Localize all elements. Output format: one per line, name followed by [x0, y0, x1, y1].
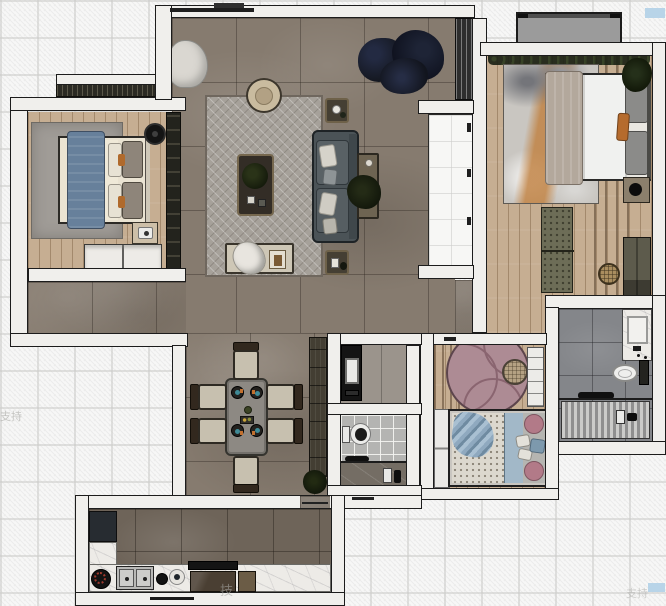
toilet-bowl: [612, 364, 638, 382]
faucet: [633, 346, 641, 351]
kids-pillow-pink: [524, 461, 544, 481]
closet-top-strip: [56, 84, 160, 97]
sliding-glass-door: [455, 18, 473, 100]
wall: [172, 345, 186, 497]
table-plant: [242, 163, 268, 189]
bedroom-left-floor: [28, 112, 166, 272]
dining-chair-seat: [266, 418, 295, 444]
dining-chair-seat: [233, 350, 259, 380]
wall: [327, 333, 341, 497]
drain: [125, 577, 129, 581]
balcony: [516, 12, 622, 45]
armchair: [246, 78, 282, 113]
napkin-teal: [255, 428, 260, 433]
shower-knob: [627, 413, 637, 421]
plate: [231, 424, 244, 437]
center-snacks: [240, 416, 254, 424]
floor-plan: 支持 技 支持: [0, 0, 666, 606]
wall: [75, 495, 89, 606]
pillow-gray: [625, 131, 648, 175]
nightstand: [623, 177, 650, 203]
dining-plant: [303, 470, 327, 494]
centerpiece-plant: [244, 406, 252, 414]
bench: [225, 243, 294, 274]
table-cup: [247, 196, 255, 204]
shower-hose: [394, 470, 401, 483]
fridge: [89, 511, 117, 542]
pillow-gray: [122, 182, 143, 219]
wall: [28, 268, 186, 282]
kids-pouf: [502, 359, 528, 385]
wardrobe-strip: [166, 112, 181, 272]
void-mark: [467, 217, 471, 225]
armchair-seat: [255, 87, 273, 105]
plate: [250, 386, 263, 399]
pillow-gray: [122, 141, 143, 178]
toilet-seat-line: [618, 369, 632, 378]
food-orange: [240, 389, 243, 393]
plant-foliage: [380, 58, 428, 94]
wall: [10, 97, 28, 347]
toilet-cistern: [639, 360, 649, 385]
wall: [420, 488, 559, 500]
wall: [418, 265, 474, 279]
void-mark: [467, 123, 471, 132]
sink-basin: [119, 569, 134, 587]
bench-box: [269, 250, 286, 269]
kitchen-cabinet-dark: [190, 571, 236, 592]
bed-headboard: [145, 138, 150, 222]
bench-olive: [541, 207, 573, 293]
toilet-tank: [342, 426, 350, 443]
box-figure: [274, 255, 282, 266]
range-hood-bar: [188, 561, 238, 570]
watermark-text: 支持: [0, 408, 22, 424]
kitchen-door-leaf: [302, 502, 328, 504]
sofa-pillow: [318, 144, 337, 168]
napkin-teal: [255, 391, 260, 396]
wall: [406, 345, 420, 488]
bed-blue-throw: [67, 131, 105, 229]
wall: [652, 295, 666, 455]
side-table-bottom: [325, 250, 349, 275]
pillow-orange: [118, 154, 125, 166]
plate-center: [174, 574, 180, 580]
wall: [327, 403, 422, 415]
wall: [420, 333, 547, 345]
console-plant: [347, 175, 381, 209]
decor-item: [331, 258, 339, 268]
bed-headboard: [647, 75, 651, 179]
dining-chair-back: [233, 484, 259, 493]
dining-chair-seat: [198, 418, 227, 444]
console-vase: [365, 159, 373, 167]
blue-artifact: [648, 583, 665, 592]
wall: [10, 333, 188, 347]
wall: [545, 441, 666, 455]
wall: [652, 42, 666, 308]
wall: [545, 295, 666, 309]
closet-cap-wall: [56, 74, 160, 85]
table-lamp: [629, 183, 642, 196]
tray-dot: [144, 231, 149, 236]
kitchen-cabinet-brown: [238, 571, 256, 592]
lightwell-void: [428, 114, 473, 266]
round-burner: [91, 569, 111, 589]
kids-pillow-white: [515, 434, 531, 448]
toilet-lid: [355, 428, 367, 441]
kids-pillow-blue: [529, 438, 545, 454]
drain: [143, 577, 147, 581]
wall: [420, 333, 434, 500]
burner-ring: [94, 572, 106, 584]
bench-split: [542, 250, 574, 252]
wall: [75, 592, 345, 606]
wall: [545, 307, 559, 500]
kids-bed: [448, 409, 545, 487]
wall: [155, 5, 172, 100]
food-orange: [252, 431, 255, 435]
plate: [231, 386, 244, 399]
foyer-floor: [28, 282, 186, 333]
sink-basin: [136, 569, 151, 587]
hall-floor: [455, 280, 472, 333]
plate: [250, 424, 263, 437]
dining-chair-back: [294, 384, 303, 410]
bed-blanket-taupe: [545, 71, 583, 185]
shower-panel: [616, 410, 625, 424]
dining-chair-back: [294, 418, 303, 444]
dining-chair-seat: [266, 384, 295, 410]
kids-shelf-cabinet: [527, 347, 544, 407]
wall: [327, 333, 422, 345]
coffee-table: [237, 154, 274, 216]
bed-double: [58, 136, 150, 224]
dining-tall-cabinet: [309, 337, 327, 477]
door-mark: [444, 337, 456, 341]
dining-chair-seat: [198, 384, 227, 410]
nightstand: [132, 222, 158, 244]
vanity-sink: [345, 358, 359, 384]
kids-room: [434, 345, 545, 488]
double-sink: [116, 566, 154, 590]
void-mark: [467, 169, 471, 177]
pillow-orange: [118, 196, 125, 208]
pillow-orange: [616, 113, 630, 142]
ceiling-fan: [144, 123, 166, 145]
food-orange: [252, 390, 255, 394]
decor-item: [340, 262, 347, 270]
bath-vanity: [622, 309, 652, 361]
plate-on-counter: [169, 569, 185, 585]
kettle: [156, 573, 168, 585]
bedroom-right: [486, 56, 652, 333]
watermark-text: 支持: [626, 585, 648, 601]
wall: [472, 18, 487, 333]
wall: [480, 42, 666, 56]
entry-door-bar: [170, 8, 254, 12]
wall: [418, 100, 474, 114]
balcony-tick: [610, 14, 620, 18]
door-mark: [352, 497, 374, 500]
rattan-pouf: [598, 263, 620, 285]
dresser-white: [84, 244, 162, 269]
balcony-tick: [518, 14, 528, 18]
dining-chair-seat: [233, 456, 259, 486]
sofa-pillow: [322, 168, 338, 185]
shower-panel: [383, 468, 392, 483]
kids-pillow-pink: [524, 414, 544, 434]
dining-table: [225, 378, 268, 456]
table-cup: [258, 199, 266, 207]
food-orange: [240, 431, 243, 435]
curtain-fabric: [168, 40, 208, 88]
toilet-bowl: [350, 423, 371, 445]
shower-glass-line: [559, 398, 652, 400]
side-table-top: [325, 98, 349, 123]
soap-dots: [637, 354, 640, 357]
fan-hub: [152, 131, 158, 137]
vanity-shelf: [345, 390, 359, 396]
wall: [331, 495, 345, 606]
bath-basin: [627, 316, 648, 344]
sofa-pillow: [322, 217, 338, 235]
decor-item: [340, 112, 346, 118]
blue-artifact: [645, 8, 665, 18]
entry-door-bar: [214, 3, 244, 8]
tray: [138, 227, 153, 239]
watermark-label: 支持: [626, 588, 648, 600]
wardrobe-dark: [623, 237, 651, 299]
black-vanity: [341, 345, 362, 401]
door-mark: [150, 597, 194, 600]
bench-cloth: [229, 238, 268, 279]
large-plant: [358, 30, 446, 96]
balcony-edge: [520, 14, 618, 18]
watermark-label: 支持: [0, 411, 22, 423]
